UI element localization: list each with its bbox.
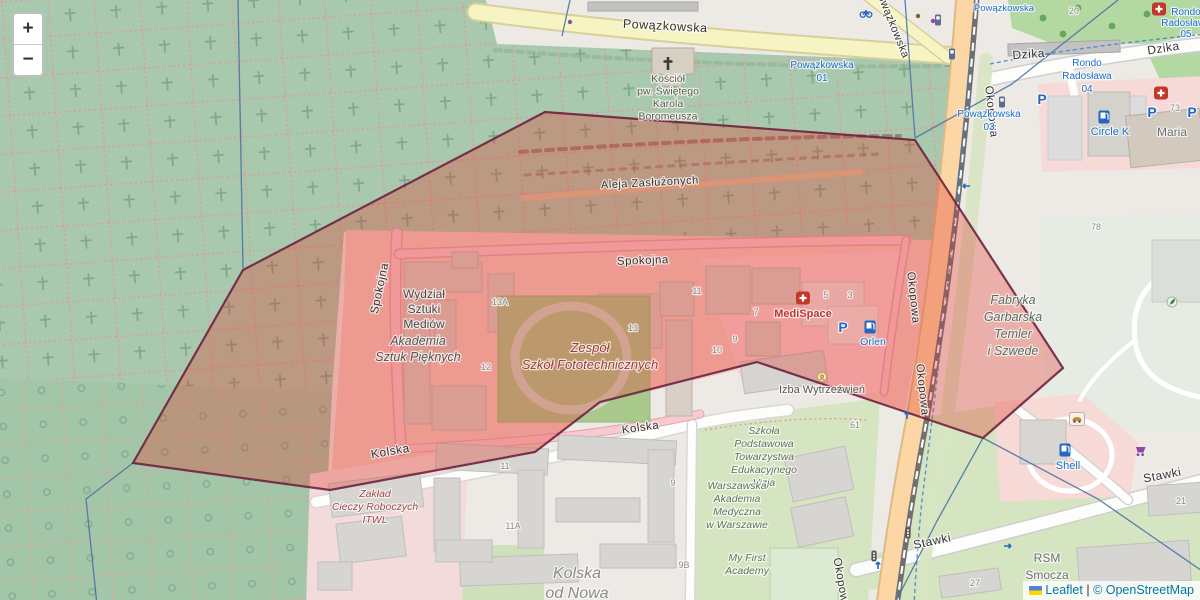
powazkowska-03-label: 03: [983, 122, 995, 133]
tree-icon: [1109, 23, 1116, 30]
warszawska-akademia-label: w Warszawie: [706, 519, 768, 531]
svg-text:P: P: [1147, 104, 1156, 120]
openstreetmap-link[interactable]: © OpenStreetMap: [1093, 583, 1194, 597]
itwl-label: Cieczy Roboczych: [332, 501, 419, 513]
church-label: Karola: [653, 98, 684, 110]
house-number: 78: [1091, 222, 1101, 232]
map-svg: PPPP PowązkowskaPowązkowskaOkopowaOkopow…: [0, 0, 1200, 600]
hospital-icon: [1152, 3, 1166, 16]
rondo-radoslawa-04-label: 04: [1081, 84, 1093, 95]
traffic-signal-icon: [905, 528, 910, 539]
house-number: 11A: [505, 521, 520, 531]
svg-text:P: P: [1037, 91, 1046, 107]
rondo-radoslawa-05-label: Rondo: [1171, 7, 1200, 18]
zoom-in-button[interactable]: +: [14, 14, 42, 45]
attribution-bar: Leaflet | © OpenStreetMap: [1023, 581, 1200, 600]
leaflet-link[interactable]: Leaflet: [1045, 583, 1083, 597]
zespol-szkol-label: Zespół: [569, 340, 610, 355]
poi-amber-icon: [817, 372, 826, 381]
leaf-icon: [1167, 297, 1177, 307]
tree-icon: [1144, 11, 1151, 18]
church-label: Boromeusza: [639, 111, 698, 123]
my-first-academy-label: My First: [728, 552, 766, 564]
my-first-academy-label: Academy: [724, 565, 770, 577]
medispace-label: MediSpace: [774, 308, 831, 320]
house-number: 7: [753, 307, 758, 317]
izba-wytrzezwien-label: Izba Wytrzeźwień: [779, 384, 865, 396]
warszawska-akademia-label: Warszawska: [707, 480, 766, 492]
dot-icon: [916, 14, 920, 18]
tree-icon: [1060, 31, 1067, 38]
rondo-radoslawa-04-label: Radosława: [1062, 71, 1112, 82]
zoom-out-button[interactable]: −: [14, 45, 42, 75]
itwl-label: ITWL: [362, 514, 387, 526]
hospital-icon: [796, 292, 810, 305]
map-canvas[interactable]: PPPP PowązkowskaPowązkowskaOkopowaOkopow…: [0, 0, 1200, 600]
ukraine-flag-icon: [1029, 586, 1042, 595]
street-label: Spokojna: [617, 254, 669, 268]
powazkowska-03-label: Powązkowska: [957, 109, 1021, 120]
bus-stop-icon: [999, 97, 1005, 108]
orlen-label: Orlen: [860, 336, 886, 348]
powazkowska-top-label: Powązkowska: [974, 3, 1035, 14]
house-number: 73: [1170, 103, 1180, 113]
fabryka-garbarska-label: Temler: [994, 327, 1033, 341]
kolska-od-nowa-label: Kolska: [553, 565, 601, 582]
house-number: 20: [1069, 6, 1079, 16]
house-number: 5: [823, 290, 828, 300]
church-label: Kościół: [651, 73, 686, 85]
akademia-sztuk-pieknych-label: Akademia: [389, 334, 446, 348]
szkola-vizja-label: Towarzystwa: [734, 451, 794, 463]
house-number: 12: [481, 362, 491, 372]
zespol-szkol-label: Szkół Fototechnicznych: [522, 357, 659, 372]
parking-icon: P: [838, 319, 847, 335]
house-number: 11: [500, 461, 509, 471]
house-number: 13: [628, 323, 638, 333]
fabryka-garbarska-label: i Szwede: [988, 344, 1039, 358]
rondo-radoslawa-05-label: 05: [1180, 29, 1192, 40]
fabryka-garbarska-label: Fabryka: [990, 293, 1035, 307]
parking-icon: P: [1037, 91, 1046, 107]
circle-k-label: Circle K: [1091, 126, 1130, 138]
tree-icon: [1040, 15, 1047, 22]
powazkowska-01-label: Powązkowska: [790, 60, 854, 71]
rsm-smocza-label: Smocza: [1025, 568, 1069, 582]
dot-icon: [568, 20, 572, 24]
traffic-signal-icon: [871, 551, 876, 562]
szkola-vizja-label: Edukacyjnego: [731, 464, 797, 476]
maria-label: Maria: [1157, 125, 1187, 139]
rondo-radoslawa-04-label: Rondo: [1072, 58, 1102, 69]
akademia-sztuk-pieknych-label: Sztuk Pięknych: [375, 350, 461, 364]
house-number: 9: [670, 478, 675, 488]
zoom-control: + −: [12, 12, 44, 77]
attribution-separator: |: [1086, 583, 1089, 597]
parking-icon: P: [1147, 104, 1156, 120]
szkola-vizja-label: Szkoła: [748, 425, 780, 437]
bus-stop-icon: [935, 15, 941, 26]
carwash-icon: [1070, 413, 1085, 426]
szkola-vizja-label: Podstawowa: [734, 438, 794, 450]
bus-stop-icon: [949, 49, 955, 60]
fuel-icon: [1060, 444, 1071, 457]
fuel-icon: [1099, 111, 1110, 124]
fabryka-garbarska-label: Garbarska: [984, 310, 1042, 324]
house-number: 27: [970, 578, 980, 588]
house-number: 21: [1176, 496, 1186, 506]
warszawska-akademia-label: Akademia: [713, 493, 761, 505]
dot-icon: [931, 19, 935, 23]
street-label: Dzika: [1012, 46, 1045, 62]
kolska-od-nowa-label: od Nowa: [545, 585, 608, 600]
powazkowska-01-label: 01: [816, 73, 828, 84]
shell-label: Shell: [1056, 460, 1080, 472]
house-number: 9B: [678, 560, 689, 570]
parking-icon: P: [1187, 104, 1196, 120]
house-number: 61: [850, 420, 860, 430]
fuel-icon: [865, 321, 876, 334]
hospital-icon: [1154, 87, 1168, 100]
house-number: 11: [692, 286, 701, 296]
itwl-label: Zakład: [358, 488, 392, 500]
wydzial-sztuki-mediow-label: Wydział: [403, 287, 445, 301]
house-number: 3: [847, 290, 852, 300]
rondo-radoslawa-05-label: Radosława: [1161, 18, 1200, 29]
rsm-smocza-label: RSM: [1034, 551, 1061, 565]
wydzial-sztuki-mediow-label: Sztuki: [408, 302, 441, 316]
house-number: 9: [732, 334, 737, 344]
church-label: pw. Świętego: [637, 85, 699, 98]
svg-text:P: P: [838, 319, 847, 335]
warszawska-akademia-label: Medyczna: [713, 506, 761, 518]
wydzial-sztuki-mediow-label: Mediów: [403, 317, 445, 331]
house-number: 10: [712, 345, 722, 355]
house-number: 13A: [492, 297, 508, 307]
svg-text:P: P: [1187, 104, 1196, 120]
